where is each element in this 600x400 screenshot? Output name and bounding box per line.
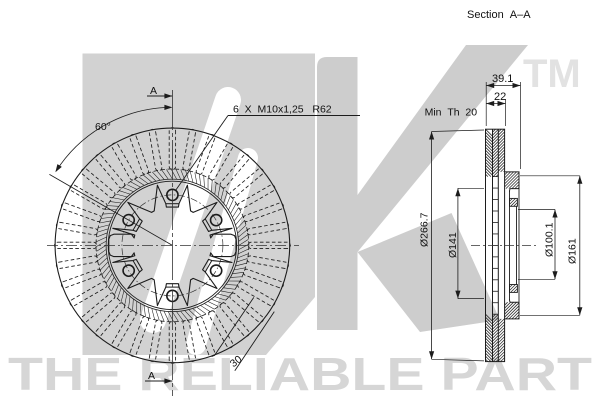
svg-text:22: 22 [494, 91, 506, 103]
svg-text:Section A–A: Section A–A [467, 9, 531, 21]
svg-text:TM: TM [523, 52, 581, 96]
svg-text:Ø161: Ø161 [567, 238, 579, 264]
svg-text:Ø141: Ø141 [447, 232, 459, 258]
svg-text:39.1: 39.1 [492, 73, 513, 85]
svg-text:60°: 60° [95, 121, 111, 133]
svg-text:Ø100.1: Ø100.1 [544, 222, 556, 257]
svg-text:A: A [150, 85, 157, 97]
svg-text:Min Th 20: Min Th 20 [425, 107, 478, 119]
svg-text:6 X M10x1,25 R62: 6 X M10x1,25 R62 [233, 104, 332, 116]
svg-text:Ø266.7: Ø266.7 [419, 212, 431, 247]
svg-text:A: A [148, 370, 155, 382]
